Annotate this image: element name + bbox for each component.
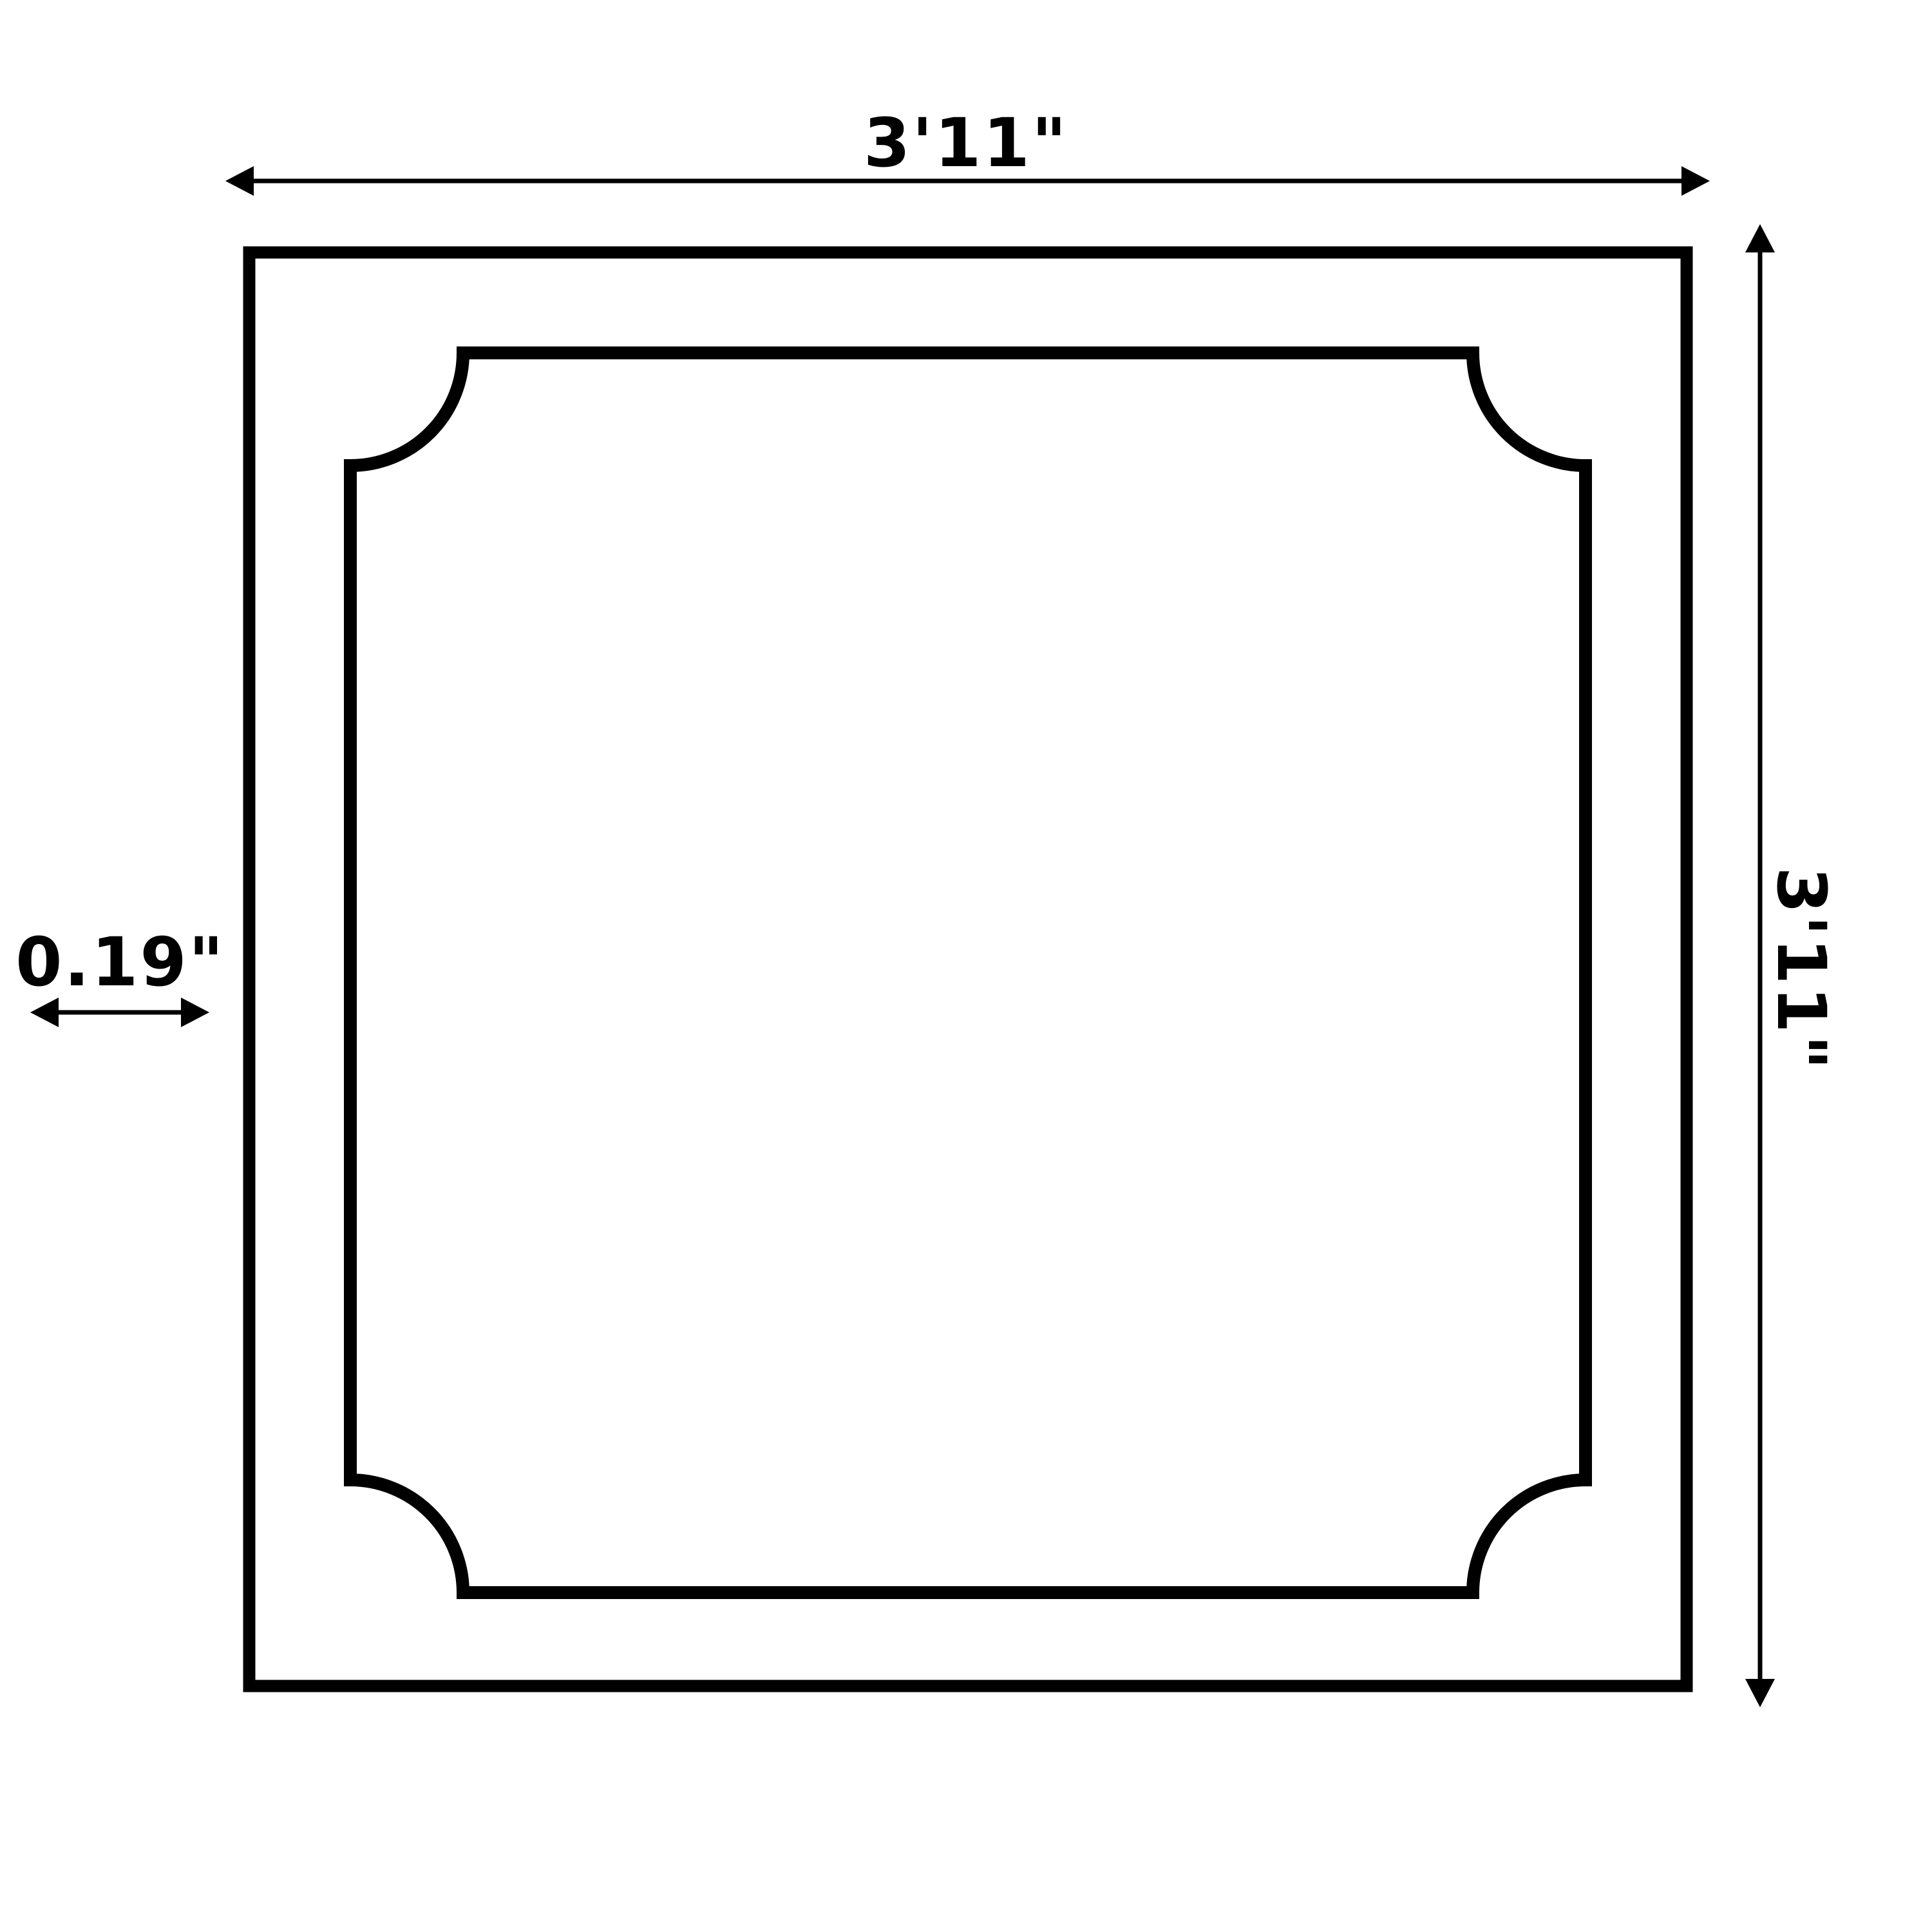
outer-square-outline [249,252,1687,1686]
height-arrowhead-bottom [1745,1679,1775,1707]
width-arrowhead-right [1681,166,1710,196]
height-dimension-label: 3'11" [1768,867,1835,1072]
thickness-dimension-arrow [30,998,209,1027]
width-arrowhead-left [225,166,254,196]
dimension-diagram: 3'11" 3'11" 0.19" [0,0,1932,1932]
panel-outline-drawing [0,0,1932,1932]
height-arrowhead-top [1745,224,1775,252]
thickness-arrowhead-right [181,998,209,1027]
thickness-arrowhead-left [30,998,59,1027]
thickness-dimension-label: 0.19" [15,929,225,996]
inner-scalloped-outline [350,353,1586,1593]
width-dimension-label: 3'11" [864,109,1068,176]
